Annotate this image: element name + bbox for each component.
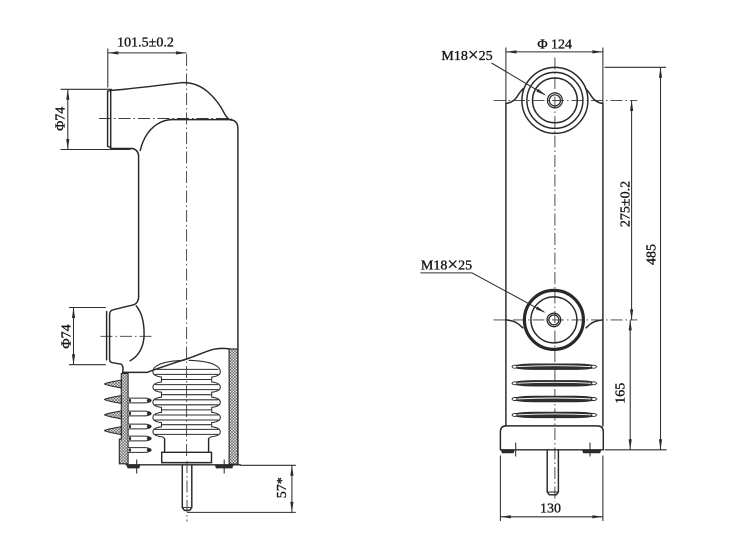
svg-text:Φ74: Φ74 [54,107,69,131]
svg-text:57*: 57* [275,477,290,498]
svg-text:101.5±0.2: 101.5±0.2 [117,35,174,50]
svg-text:485: 485 [644,244,659,265]
svg-text:165: 165 [613,383,628,404]
svg-text:M18×25: M18×25 [441,45,492,66]
svg-text:Φ 124: Φ 124 [537,37,572,52]
svg-text:M18×25: M18×25 [421,255,472,276]
svg-text:Φ74: Φ74 [60,324,75,348]
svg-text:130: 130 [540,502,561,517]
svg-text:275±0.2: 275±0.2 [618,181,633,227]
